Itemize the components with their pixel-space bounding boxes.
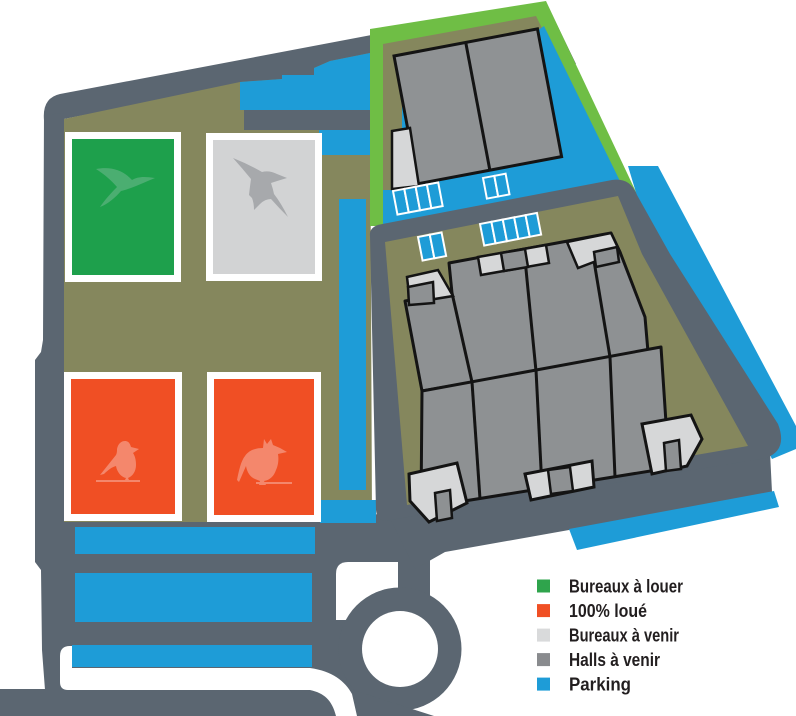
svg-text:Bureaux à venir: Bureaux à venir xyxy=(569,626,679,646)
svg-text:Parking: Parking xyxy=(569,675,631,695)
svg-text:Bureaux à louer: Bureaux à louer xyxy=(569,577,683,597)
svg-text:Halls à venir: Halls à venir xyxy=(569,650,660,670)
svg-text:100% loué: 100% loué xyxy=(569,601,647,621)
